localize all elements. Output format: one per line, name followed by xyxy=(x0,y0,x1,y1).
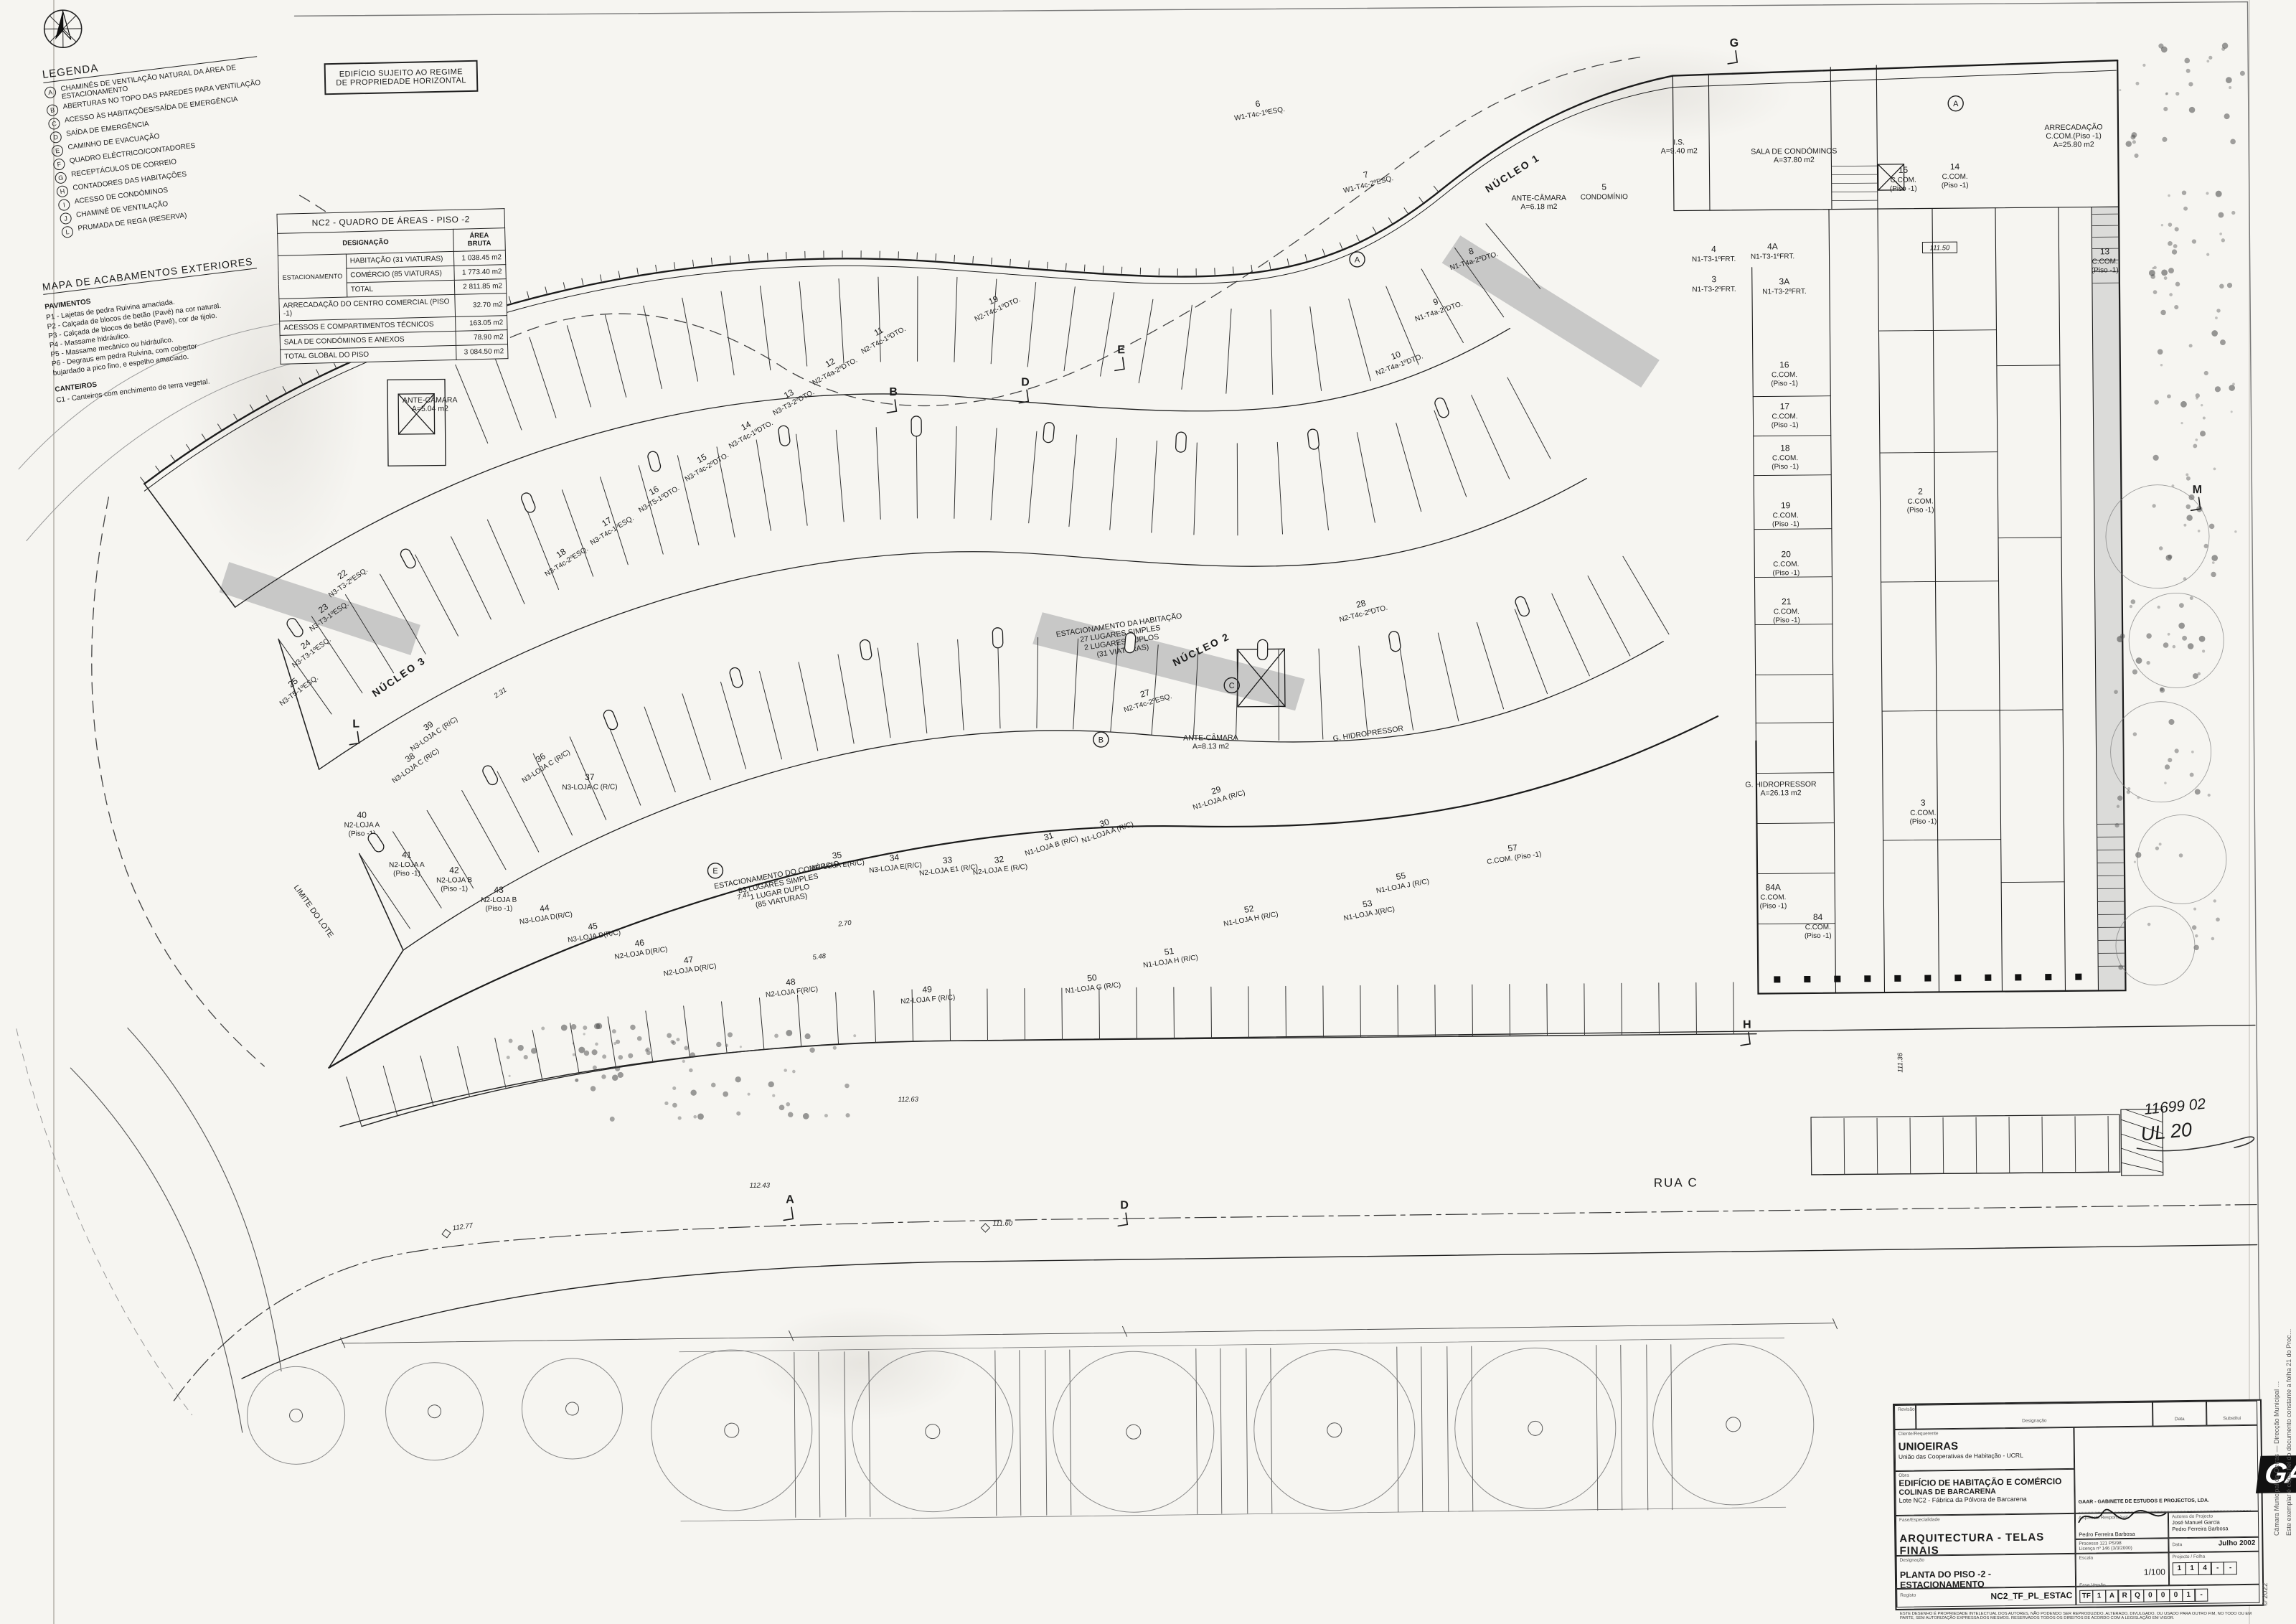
legend-key-badge: A xyxy=(44,86,57,99)
code-box: R xyxy=(2118,1590,2132,1602)
parking-space-label: 6W1-T4c-1ºESQ. xyxy=(1232,94,1286,123)
svg-text:C.COM.: C.COM. xyxy=(1805,924,1831,931)
svg-text:C.COM.(Piso -1): C.COM.(Piso -1) xyxy=(2046,131,2102,141)
parking-space-label: 18N3-T4c-2ºESQ. xyxy=(537,535,590,578)
svg-text:37: 37 xyxy=(585,772,595,782)
svg-text:ANTE-CÂMARA: ANTE-CÂMARA xyxy=(1512,193,1567,203)
svg-text:N2-LOJA B: N2-LOJA B xyxy=(481,896,517,904)
north-arrow-icon xyxy=(44,10,81,47)
parking-space-label: 24N3-T3-1ºESQ. xyxy=(284,626,333,670)
svg-text:40: 40 xyxy=(357,810,367,820)
svg-text:34: 34 xyxy=(889,852,900,863)
svg-text:C.COM.: C.COM. xyxy=(1907,497,1933,505)
parking-space-label: 3N1-T3-2ºFRT. xyxy=(1692,274,1736,294)
rev-label: Revisão xyxy=(1898,1407,1912,1412)
svg-text:G: G xyxy=(1730,37,1739,50)
street-label: RUA C xyxy=(1654,1175,1698,1190)
svg-text:C.COM.: C.COM. xyxy=(1773,560,1799,568)
svg-text:N3-LOJA C (R/C): N3-LOJA C (R/C) xyxy=(391,747,441,785)
svg-text:N3-T5-1ºDTO.: N3-T5-1ºDTO. xyxy=(637,484,681,515)
svg-text:28: 28 xyxy=(1355,598,1368,610)
svg-text:B: B xyxy=(1098,736,1104,745)
boundary-label: LIMITE DO LOTE xyxy=(292,883,335,939)
svg-text:27: 27 xyxy=(1139,687,1151,699)
dimension-value: 2.31 xyxy=(492,686,508,700)
logo-company: GAAR - GABINETE DE ESTUDOS E PROJECTOS, … xyxy=(2079,1498,2209,1505)
svg-text:21: 21 xyxy=(1782,596,1792,606)
svg-text:19: 19 xyxy=(1781,500,1791,510)
svg-text:2.70: 2.70 xyxy=(837,919,852,929)
legend-key-badge: L xyxy=(61,225,74,238)
parking-space-label: 19N2-T4c-1ºDTO. xyxy=(969,286,1022,324)
svg-text:CONDOMÍNIO: CONDOMÍNIO xyxy=(1581,192,1628,202)
parking-space-label: 22N3-T3-2ºESQ. xyxy=(321,557,370,599)
svg-text:44: 44 xyxy=(539,902,550,914)
parking-space-label: 20C.COM.(Piso -1) xyxy=(1772,549,1799,577)
room-label: ESTACIONAMENTO DO COMÉRCIO83 LUGARES SIM… xyxy=(713,859,844,916)
registo-hdr: Fase Versão xyxy=(2079,1582,2106,1587)
level-value: 112.77 xyxy=(441,1221,474,1238)
svg-text:43: 43 xyxy=(494,885,504,895)
code-box: - xyxy=(2194,1589,2208,1602)
parking-space-label: 57C.COM. (Piso -1) xyxy=(1485,839,1542,866)
vegetation-scribble xyxy=(2148,190,2239,562)
section-marker: D xyxy=(1118,1199,1129,1226)
svg-text:57: 57 xyxy=(1507,842,1519,854)
data-label: Data xyxy=(2172,1542,2182,1547)
escala-label: Escala xyxy=(2079,1554,2165,1560)
svg-text:(Piso -1): (Piso -1) xyxy=(1805,932,1832,940)
code-box: 0 xyxy=(2169,1589,2183,1602)
svg-text:112.77: 112.77 xyxy=(452,1221,474,1232)
parking-space-label: 45N3-LOJA D(R/C) xyxy=(565,917,621,944)
svg-text:N3-LOJA C (R/C): N3-LOJA C (R/C) xyxy=(409,715,459,754)
parking-space-label: 53N1-LOJA J(R/C) xyxy=(1341,894,1396,923)
svg-text:(Piso -1): (Piso -1) xyxy=(1771,380,1798,388)
licenca: Licença nº 146 (3/3/2000) xyxy=(2079,1545,2165,1551)
svg-text:N2-LOJA F (R/C): N2-LOJA F (R/C) xyxy=(900,994,956,1006)
room-label: SALA DE CONDÓMINOSA=37.80 m2 xyxy=(1751,146,1837,165)
svg-text:A=9.40 m2: A=9.40 m2 xyxy=(1661,146,1698,155)
svg-text:48: 48 xyxy=(785,977,796,987)
svg-text:G. HIDROPRESSOR: G. HIDROPRESSOR xyxy=(1745,780,1817,789)
svg-text:33: 33 xyxy=(942,855,953,865)
svg-text:A=6.18 m2: A=6.18 m2 xyxy=(1520,202,1557,211)
code-box: 1 xyxy=(2182,1589,2196,1602)
svg-text:N2-LOJA F(R/C): N2-LOJA F(R/C) xyxy=(765,985,818,999)
svg-text:G. HIDROPRESSOR: G. HIDROPRESSOR xyxy=(1332,724,1404,743)
folha-label: Folha xyxy=(2193,1554,2205,1559)
svg-text:C.COM.: C.COM. xyxy=(1772,371,1797,379)
code-box: 0 xyxy=(2143,1590,2157,1602)
svg-text:N3-T4c-2ºESQ.: N3-T4c-2ºESQ. xyxy=(544,545,590,578)
vegetation-scribble xyxy=(2119,42,2246,158)
svg-text:(Piso -1): (Piso -1) xyxy=(1772,520,1799,528)
svg-text:5.48: 5.48 xyxy=(812,952,827,962)
legend-key-badge: D xyxy=(50,131,62,144)
room-label: NÚCLEO 3 xyxy=(370,654,428,699)
row-value: 3 084.50 m2 xyxy=(456,344,508,360)
room-label: ARRECADAÇÃOC.COM.(Piso -1)A=25.80 m2 xyxy=(2044,122,2102,149)
svg-text:111.36: 111.36 xyxy=(1896,1052,1904,1072)
title-block: Revisão Designação Data Substitui Client… xyxy=(1893,1399,2264,1610)
svg-text:17: 17 xyxy=(1780,401,1790,411)
client-subtitle: União das Cooperativas de Habitação - UC… xyxy=(1899,1451,2071,1460)
parking-space-label: 25N3-T5-1ºESQ. xyxy=(271,665,320,708)
parking-space-label: 3C.COM.(Piso -1) xyxy=(1909,797,1937,825)
signature xyxy=(2079,1504,2165,1524)
dimension-value: 5.48 xyxy=(812,952,827,962)
svg-text:(Piso -1): (Piso -1) xyxy=(1907,506,1934,514)
svg-text:31: 31 xyxy=(1043,830,1055,842)
parking-space-label: 17N3-T4c-1ºESQ. xyxy=(583,504,635,547)
dimension-value: 2.70 xyxy=(837,919,852,929)
svg-text:53: 53 xyxy=(1362,898,1373,909)
code-box: TF xyxy=(2079,1590,2093,1603)
vegetation-scribble xyxy=(2112,524,2221,970)
copyright-year: © 2022 xyxy=(2262,1583,2269,1606)
svg-text:(Piso -1): (Piso -1) xyxy=(2092,266,2119,274)
row-value: 1 773.40 m2 xyxy=(454,265,506,281)
svg-text:N3-LOJA C (R/C): N3-LOJA C (R/C) xyxy=(521,748,572,785)
legend-key-badge: H xyxy=(56,185,69,198)
svg-text:N1-T4a-2ºDTO.: N1-T4a-2ºDTO. xyxy=(1414,300,1464,324)
handwritten-note: 11699 02 UL 20 xyxy=(2132,1092,2254,1157)
code-box: 1 xyxy=(2186,1562,2199,1575)
room-label: NÚCLEO 1 xyxy=(1482,151,1541,194)
column-pillars xyxy=(283,397,1452,639)
parking-space-label: 51N1-LOJA H (R/C) xyxy=(1141,942,1198,970)
rev-data: Data xyxy=(2156,1417,2203,1422)
svg-text:N2-LOJA E (R/C): N2-LOJA E (R/C) xyxy=(972,863,1027,877)
projecto-label: Projecto xyxy=(2173,1554,2190,1559)
parking-stall-lines xyxy=(346,982,1735,1127)
svg-text:N3-T3-2ºESQ.: N3-T3-2ºESQ. xyxy=(327,566,370,599)
svg-text:(Piso -1): (Piso -1) xyxy=(1772,569,1799,577)
svg-text:(Piso -1): (Piso -1) xyxy=(1890,185,1917,193)
parking-space-label: 4N1-T3-1ºFRT. xyxy=(1692,244,1736,264)
svg-text:2: 2 xyxy=(1918,487,1923,497)
svg-text:N3-T4c-1ºESQ.: N3-T4c-1ºESQ. xyxy=(589,515,636,548)
svg-text:49: 49 xyxy=(922,984,933,995)
svg-text:15: 15 xyxy=(1899,165,1909,175)
parking-space-label: 30N1-LOJA A (R/C) xyxy=(1077,809,1134,845)
parking-space-label: 17C.COM.(Piso -1) xyxy=(1771,401,1798,429)
parking-space-label: 2C.COM.(Piso -1) xyxy=(1906,486,1934,514)
svg-text:C.COM.: C.COM. xyxy=(1891,177,1916,184)
parking-space-label: 28N2-T4c-2ºDTO. xyxy=(1336,593,1389,624)
svg-text:N1-T3-2ºFRT.: N1-T3-2ºFRT. xyxy=(1692,286,1736,294)
svg-text:47: 47 xyxy=(683,954,695,966)
circled-letter-marker: B xyxy=(1093,732,1109,747)
parking-space-label: 44N3-LOJA D(R/C) xyxy=(517,899,573,926)
svg-text:46: 46 xyxy=(634,937,646,949)
horizontal-property-notice: EDIFÍCIO SUJEITO AO REGIME DE PROPRIEDAD… xyxy=(324,60,479,95)
svg-text:29: 29 xyxy=(1210,784,1223,797)
svg-text:3: 3 xyxy=(1711,274,1716,284)
side-text-cmo: Câmara Municipal de Oeiras — Direcção Mu… xyxy=(2273,1381,2280,1536)
svg-text:112.43: 112.43 xyxy=(750,1182,771,1190)
svg-text:2.31: 2.31 xyxy=(492,686,508,700)
svg-text:D: D xyxy=(1120,1199,1129,1211)
parking-space-label: 55N1-LOJA J (R/C) xyxy=(1373,866,1430,895)
svg-text:50: 50 xyxy=(1086,972,1097,983)
svg-text:A=37.80 m2: A=37.80 m2 xyxy=(1774,156,1815,164)
svg-text:N3-LOJA E(R/C): N3-LOJA E(R/C) xyxy=(869,861,923,875)
svg-text:18: 18 xyxy=(1780,443,1790,453)
parking-space-label: 14N3-T4c-1ºDTO. xyxy=(722,409,774,450)
svg-text:5: 5 xyxy=(1601,182,1606,192)
svg-text:N3-T4c-1ºDTO.: N3-T4c-1ºDTO. xyxy=(728,419,775,451)
legend-key-badge: G xyxy=(55,172,67,184)
fase-label: Fase/Especialidade xyxy=(1899,1516,2071,1523)
svg-text:N2-LOJA A: N2-LOJA A xyxy=(389,861,425,869)
svg-text:UL 20: UL 20 xyxy=(2140,1119,2193,1145)
svg-text:C.COM.: C.COM. xyxy=(1760,893,1786,901)
parking-space-label: 43N2-LOJA B(Piso -1) xyxy=(481,885,517,913)
copyright-disclaimer: ESTE DESENHO É PROPRIEDADE INTELECTUAL D… xyxy=(1900,1612,2259,1620)
legend-key-badge: I xyxy=(57,199,70,212)
group-estacionamento: ESTACIONAMENTO xyxy=(278,254,347,299)
svg-text:A=25.80 m2: A=25.80 m2 xyxy=(2053,140,2094,149)
registo-value: NC2_TF_PL_ESTAC xyxy=(1990,1590,2072,1601)
svg-text:I.S.: I.S. xyxy=(1673,138,1685,146)
svg-text:84: 84 xyxy=(1813,912,1823,922)
parking-space-label: 12N2-T4a-2ºDTO. xyxy=(806,347,859,388)
parking-space-label: 33N2-LOJA E1 (R/C) xyxy=(918,852,979,878)
svg-text:C.COM.: C.COM. xyxy=(1774,608,1799,616)
projecto-boxes: 114-- xyxy=(2173,1562,2256,1575)
code-box: A xyxy=(2105,1590,2119,1602)
scanned-drawing-sheet: { "sheet": { "notice_line1": "EDIFÍCIO S… xyxy=(0,0,2296,1624)
parking-space-label: 13N3-T3-2ºDTO. xyxy=(766,378,816,417)
parking-space-label: 15N3-T4c-2ºDTO. xyxy=(678,441,730,483)
svg-text:H: H xyxy=(1743,1019,1751,1031)
svg-text:D: D xyxy=(1021,376,1030,388)
parking-space-label: 29N1-LOJA A (R/C) xyxy=(1189,778,1246,812)
svg-text:A: A xyxy=(1953,100,1959,108)
dimension-value: 111.36 xyxy=(1896,1052,1904,1072)
client-label: Cliente/Requerente xyxy=(1898,1430,2070,1437)
svg-text:16: 16 xyxy=(1779,360,1789,370)
parking-space-label: 42N2-LOJA B(Piso -1) xyxy=(436,865,473,893)
section-marker: L xyxy=(349,718,359,745)
data-value: Julho 2002 xyxy=(2219,1539,2256,1548)
dimension-value: 111.50 xyxy=(1922,242,1957,253)
svg-text:A=8.13 m2: A=8.13 m2 xyxy=(1192,742,1229,751)
svg-text:(Piso -1): (Piso -1) xyxy=(1760,902,1787,910)
svg-text:111.50: 111.50 xyxy=(1930,244,1950,252)
svg-text:84A: 84A xyxy=(1765,882,1780,892)
arq-name: Pedro Ferreira Barbosa xyxy=(2079,1531,2135,1538)
svg-text:13: 13 xyxy=(2100,246,2110,256)
parking-space-label: 46N2-LOJA D(R/C) xyxy=(612,934,668,962)
svg-text:(Piso -1): (Piso -1) xyxy=(1909,817,1937,825)
svg-text:C: C xyxy=(1229,682,1235,690)
parking-space-label: 19C.COM.(Piso -1) xyxy=(1772,500,1799,528)
obra-line1: EDIFÍCIO DE HABITAÇÃO E COMÉRCIO xyxy=(1899,1476,2071,1488)
parking-space-label: 48N2-LOJA F(R/C) xyxy=(764,974,819,999)
svg-text:ANTE-CÂMARA: ANTE-CÂMARA xyxy=(1183,733,1238,743)
legend-key-badge: C xyxy=(48,118,61,131)
svg-text:3A: 3A xyxy=(1779,276,1789,286)
legend: LEGENDA A CHAMINÉS DE VENTILAÇÃO NATURAL… xyxy=(42,40,298,240)
circled-letter-marker: A xyxy=(1350,252,1365,267)
legend-key-badge: E xyxy=(51,144,64,157)
parking-space-label: 27N2-T4c-2ºESQ. xyxy=(1120,682,1173,715)
parking-space-label: 36N3-LOJA C (R/C) xyxy=(514,738,572,784)
parking-stall-lines xyxy=(454,223,1541,443)
svg-text:C.COM.: C.COM. xyxy=(1910,809,1936,817)
row-value: 2 811.85 m2 xyxy=(454,279,506,295)
section-marker: B xyxy=(887,386,898,413)
code-box: 4 xyxy=(2198,1562,2211,1575)
svg-text:A: A xyxy=(1355,255,1360,264)
svg-text:(Piso -1): (Piso -1) xyxy=(393,870,420,878)
svg-text:N1-T3-2ºFRT.: N1-T3-2ºFRT. xyxy=(1762,288,1806,296)
code-box: - xyxy=(2224,1562,2237,1574)
svg-text:N3-T5-1ºESQ.: N3-T5-1ºESQ. xyxy=(278,674,320,708)
parking-space-label: 52N1-LOJA H (R/C) xyxy=(1221,899,1279,929)
parking-space-label: 84AC.COM.(Piso -1) xyxy=(1759,882,1787,910)
dimension-value: 112.63 xyxy=(898,1096,919,1104)
svg-text:N3-T3-2ºDTO.: N3-T3-2ºDTO. xyxy=(771,388,816,417)
level-value: 111.60 xyxy=(981,1220,1013,1232)
svg-text:N2-LOJA E1 (R/C): N2-LOJA E1 (R/C) xyxy=(919,863,979,878)
circled-letter-marker: A xyxy=(1948,96,1963,111)
section-marker: A xyxy=(784,1193,795,1220)
svg-text:45: 45 xyxy=(587,921,598,932)
svg-text:N1-LOJA G (R/C): N1-LOJA G (R/C) xyxy=(1065,981,1121,995)
parking-space-label: 32N2-LOJA E (R/C) xyxy=(971,852,1028,878)
parking-space-label: 50N1-LOJA G (R/C) xyxy=(1063,970,1121,995)
legend-key-badge: B xyxy=(46,104,59,117)
row-value: 1 038.45 m2 xyxy=(453,250,505,266)
svg-text:112.63: 112.63 xyxy=(898,1096,919,1104)
svg-text:N3-LOJA C (R/C): N3-LOJA C (R/C) xyxy=(562,783,617,792)
svg-text:6: 6 xyxy=(1254,98,1261,109)
areas-table: NC2 - QUADRO DE ÁREAS - PISO -2 DESIGNAÇ… xyxy=(276,208,508,365)
svg-text:14: 14 xyxy=(1950,161,1960,172)
svg-text:9: 9 xyxy=(1431,296,1439,307)
svg-text:B: B xyxy=(889,386,898,398)
parking-space-label: 11N2-T4c-1ºDTO. xyxy=(855,315,908,356)
svg-text:51: 51 xyxy=(1164,946,1175,957)
code-box: 0 xyxy=(2156,1589,2170,1602)
svg-text:N2-T4a-2ºDTO.: N2-T4a-2ºDTO. xyxy=(811,357,859,388)
row-value: 32.70 m2 xyxy=(455,294,507,317)
parking-space-label: 39N3-LOJA C (R/C) xyxy=(403,706,459,754)
svg-text:(Piso -1): (Piso -1) xyxy=(1773,616,1800,624)
svg-text:M: M xyxy=(2193,484,2202,496)
side-text-copy: Este exemplar é cópia fiel do documento … xyxy=(2285,1328,2292,1536)
vegetation-scribble xyxy=(573,1029,857,1122)
svg-text:L: L xyxy=(352,718,359,731)
row-value: 78.90 m2 xyxy=(456,330,507,346)
svg-text:ARRECADAÇÃO: ARRECADAÇÃO xyxy=(2044,122,2102,132)
parking-space-label: 34N3-LOJA E(R/C) xyxy=(867,850,922,875)
svg-text:NÚCLEO 3: NÚCLEO 3 xyxy=(370,654,428,699)
svg-text:C.COM.: C.COM. xyxy=(1772,454,1798,462)
registo-boxes: TF1ARQ0001- xyxy=(2079,1588,2256,1603)
svg-text:(Piso -1): (Piso -1) xyxy=(1772,463,1799,471)
svg-text:55: 55 xyxy=(1396,870,1407,882)
section-marker: D xyxy=(1019,376,1030,403)
svg-text:SALA DE CONDÓMINOS: SALA DE CONDÓMINOS xyxy=(1751,146,1837,156)
parking-space-label: 5CONDOMÍNIO xyxy=(1581,182,1629,202)
room-label: ANTE-CÂMARAA=8.13 m2 xyxy=(1183,733,1238,751)
svg-text:111.60: 111.60 xyxy=(992,1220,1012,1228)
svg-text:(Piso -1): (Piso -1) xyxy=(441,885,468,893)
parking-space-label: 3AN1-T3-2ºFRT. xyxy=(1762,276,1806,296)
registo-label: Registo xyxy=(1900,1593,1916,1598)
circled-letter-marker: E xyxy=(707,863,723,878)
svg-text:N1-T3-1ºFRT.: N1-T3-1ºFRT. xyxy=(1751,253,1794,261)
dimension-value: 112.43 xyxy=(750,1182,771,1190)
parking-space-label: 16N3-T5-1ºDTO. xyxy=(631,474,681,515)
designacao-label: Designação xyxy=(1900,1556,2072,1563)
section-marker: H xyxy=(1741,1019,1751,1046)
autor-2: Pedro Ferreira Barbosa xyxy=(2172,1525,2255,1532)
code-box: 1 xyxy=(2173,1562,2186,1575)
svg-text:C.COM.: C.COM. xyxy=(1772,413,1797,421)
escala-value: 1/100 xyxy=(2079,1567,2165,1577)
svg-text:C.COM.: C.COM. xyxy=(2092,258,2118,266)
section-marker: E xyxy=(1115,344,1126,370)
svg-text:32: 32 xyxy=(994,854,1004,865)
svg-text:4: 4 xyxy=(1711,244,1716,254)
svg-text:A=5.04 m2: A=5.04 m2 xyxy=(412,404,448,413)
svg-text:A=26.13 m2: A=26.13 m2 xyxy=(1761,789,1802,797)
parking-space-label: 18C.COM.(Piso -1) xyxy=(1772,443,1799,471)
svg-text:N2-T4c-1ºDTO.: N2-T4c-1ºDTO. xyxy=(860,325,907,356)
svg-text:11699 02: 11699 02 xyxy=(2143,1096,2206,1118)
parking-space-label: 16C.COM.(Piso -1) xyxy=(1771,360,1798,388)
rev-substitui: Substitui xyxy=(2210,1416,2254,1422)
parking-space-label: 47N2-LOJA D(R/C) xyxy=(662,951,717,978)
parking-space-label: 15C.COM.(Piso -1) xyxy=(1890,165,1917,193)
room-label: ANTE-CÂMARAA=5.04 m2 xyxy=(403,395,458,413)
svg-text:NÚCLEO 1: NÚCLEO 1 xyxy=(1482,151,1541,194)
svg-text:42: 42 xyxy=(449,865,459,875)
svg-text:E: E xyxy=(1117,344,1125,356)
col-area-bruta: ÁREA BRUTA xyxy=(453,228,506,252)
parking-space-label: 9N1-T4a-2ºDTO. xyxy=(1411,289,1464,324)
svg-text:N2-LOJA A: N2-LOJA A xyxy=(344,821,380,829)
parking-space-label: 4AN1-T3-1ºFRT. xyxy=(1751,241,1794,261)
column-pillars xyxy=(364,595,1533,853)
room-label: G. HIDROPRESSOR xyxy=(1332,724,1404,743)
svg-text:C.COM.: C.COM. xyxy=(1942,173,1967,181)
code-box: 1 xyxy=(2092,1590,2106,1602)
parking-space-label: 49N2-LOJA F (R/C) xyxy=(900,982,956,1006)
code-box: - xyxy=(2211,1562,2224,1574)
parking-space-label: 21C.COM.(Piso -1) xyxy=(1773,596,1800,624)
svg-text:E: E xyxy=(712,867,717,876)
svg-text:52: 52 xyxy=(1243,903,1255,915)
svg-text:ANTE-CÂMARA: ANTE-CÂMARA xyxy=(403,395,458,405)
obra-line3: Lote NC2 - Fábrica da Pólvora de Barcare… xyxy=(1899,1495,2071,1504)
code-box: Q xyxy=(2130,1590,2144,1602)
svg-text:7: 7 xyxy=(1363,169,1370,180)
fase-value: ARQUITECTURA - TELAS FINAIS xyxy=(1899,1531,2071,1557)
row-value: 163.05 m2 xyxy=(456,316,507,332)
parking-space-label: 84C.COM.(Piso -1) xyxy=(1805,912,1832,940)
parking-stall-lines xyxy=(357,556,1671,929)
room-label: I.S.A=9.40 m2 xyxy=(1661,138,1698,155)
section-marker: G xyxy=(1728,37,1739,64)
room-label: ANTE-CÂMARAA=6.18 m2 xyxy=(1512,193,1567,212)
